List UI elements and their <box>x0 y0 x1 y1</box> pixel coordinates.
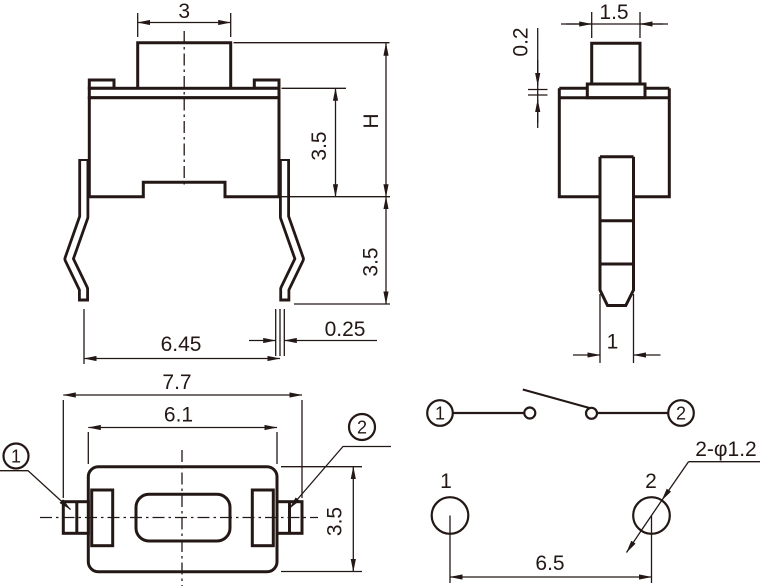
technical-drawing-canvas: 3 H 3.5 3.5 6.45 0.25 <box>0 0 760 586</box>
front-view: 3 H 3.5 3.5 6.45 0.25 <box>69 0 390 364</box>
schematic-lever <box>523 390 590 409</box>
footprint-pad-1-label: 1 <box>440 470 452 493</box>
terminal-2-number: 2 <box>357 418 367 438</box>
dim-front-lead-span: 6.45 <box>84 309 284 364</box>
dim-label-side-pin-width: 1 <box>607 331 619 354</box>
dim-label-total-height: H <box>360 113 383 128</box>
footprint-pad-2-label: 2 <box>645 470 657 493</box>
terminal-1-balloon: 1 <box>0 444 71 510</box>
circuit-schematic: 1 2 <box>427 390 694 426</box>
schematic-terminal-2-number: 2 <box>676 404 686 424</box>
dim-footprint-hole-callout: 2-φ1.2 <box>627 438 760 553</box>
dim-label-body-width: 6.1 <box>164 404 193 427</box>
side-view: 1.5 0.2 1 <box>510 1 670 363</box>
dim-footprint-pitch: 6.5 <box>450 516 652 584</box>
dim-front-upper-body-height: 3.5 <box>308 88 336 196</box>
dim-label-upper-body-height: 3.5 <box>308 131 331 160</box>
dim-front-lead-thickness: 0.25 <box>249 318 377 341</box>
dim-label-pad-pitch: 6.5 <box>535 552 564 575</box>
terminal-2-balloon: 2 <box>290 414 392 509</box>
schematic-contact-left <box>524 408 535 419</box>
dim-front-leg-length: 3.5 <box>360 197 387 304</box>
dim-label-side-clearance: 0.2 <box>510 27 533 56</box>
side-stem <box>592 43 640 84</box>
tact-switch-drawing: 3 H 3.5 3.5 6.45 0.25 <box>0 0 760 586</box>
side-body <box>559 88 669 196</box>
dim-side-button-width: 1.5 <box>561 1 668 38</box>
dim-label-overall-width: 7.7 <box>162 371 191 394</box>
dim-label-lead-span: 6.45 <box>161 333 202 356</box>
side-collar <box>587 84 645 98</box>
pcb-footprint: 1 2 6.5 2-φ1.2 <box>432 438 760 583</box>
terminal-1-number: 1 <box>11 447 21 467</box>
dim-side-clearance: 0.2 <box>510 27 548 128</box>
dim-label-body-depth: 3.5 <box>324 507 347 536</box>
plan-view: 7.7 6.1 3.5 1 2 <box>0 371 391 586</box>
schematic-contact-right <box>586 408 597 419</box>
dim-label-lead-thickness: 0.25 <box>325 318 366 341</box>
dim-front-total-height: H <box>360 43 386 196</box>
side-pin <box>600 157 634 306</box>
dim-label-hole-callout: 2-φ1.2 <box>695 438 756 461</box>
dim-label-front-button-width: 3 <box>178 0 190 23</box>
dim-label-leg-length: 3.5 <box>360 247 383 276</box>
dim-label-side-button-width: 1.5 <box>599 1 628 24</box>
schematic-terminal-1-number: 1 <box>435 404 445 424</box>
